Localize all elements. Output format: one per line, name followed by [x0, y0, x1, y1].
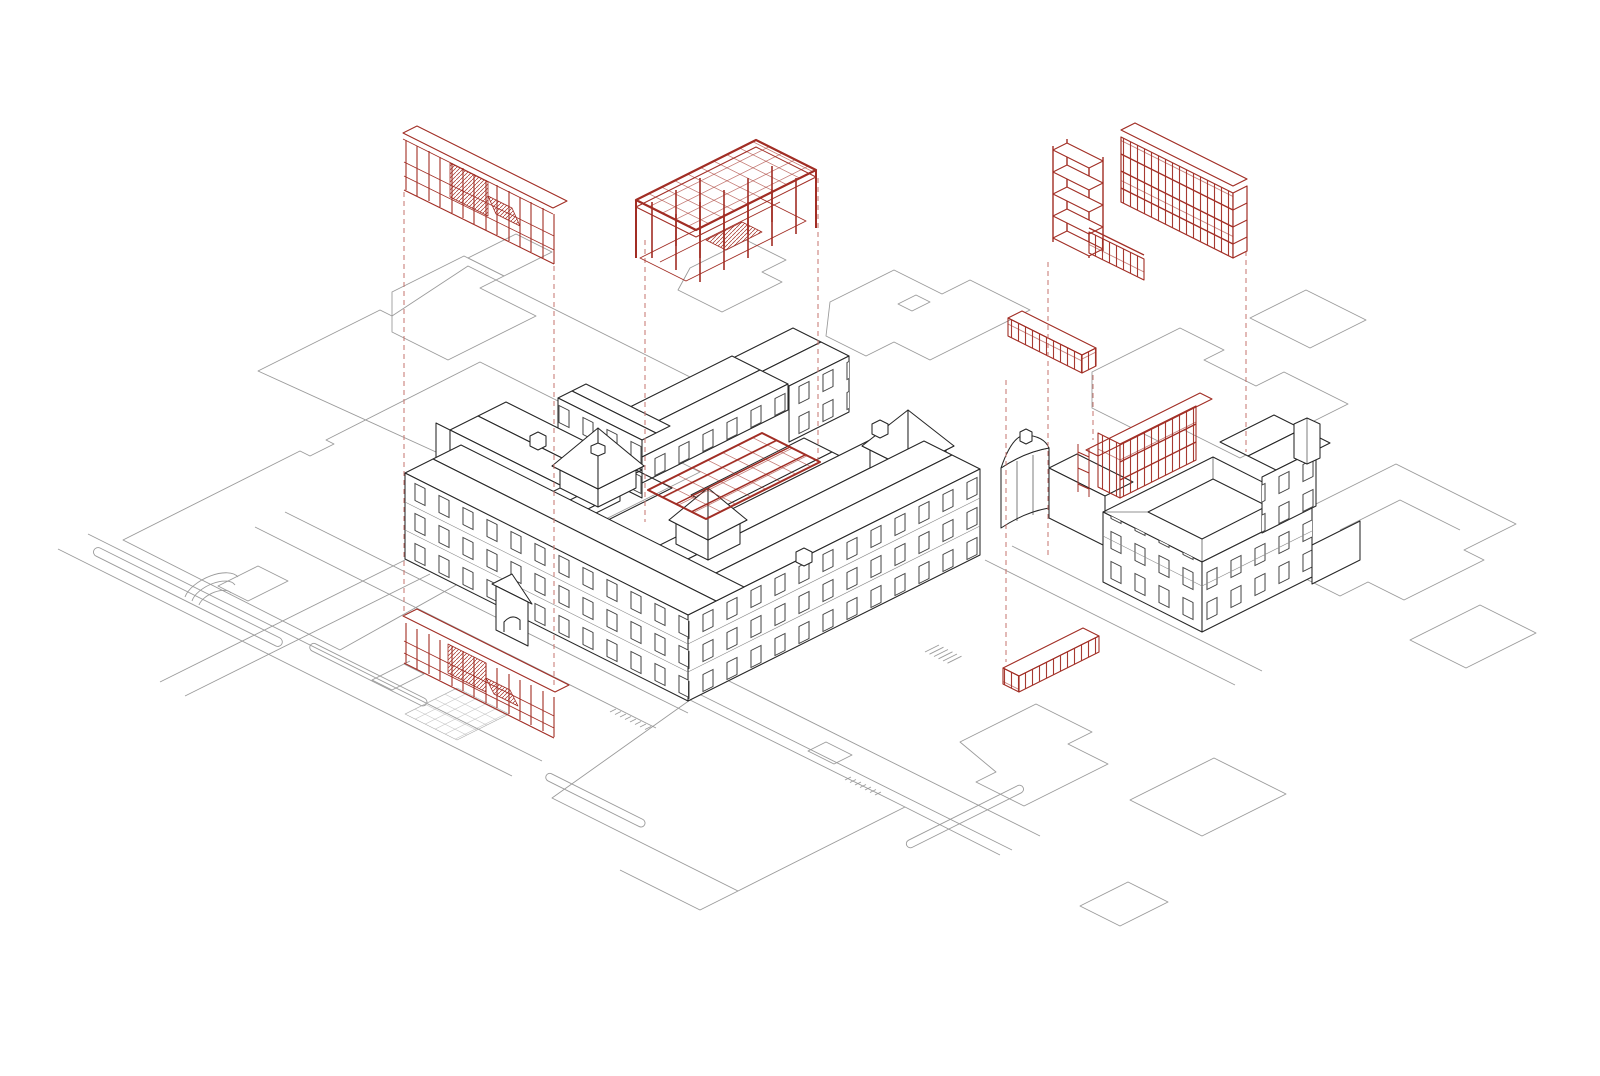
drawing-canvas — [0, 0, 1600, 1076]
wing-end-face — [1233, 186, 1247, 258]
dormer — [591, 443, 605, 456]
chimney — [530, 432, 546, 450]
chimney — [796, 548, 812, 566]
axonometric-drawing — [0, 0, 1600, 1076]
lantern — [1020, 429, 1032, 444]
chimney — [872, 420, 888, 438]
grid-facade — [1098, 433, 1120, 498]
